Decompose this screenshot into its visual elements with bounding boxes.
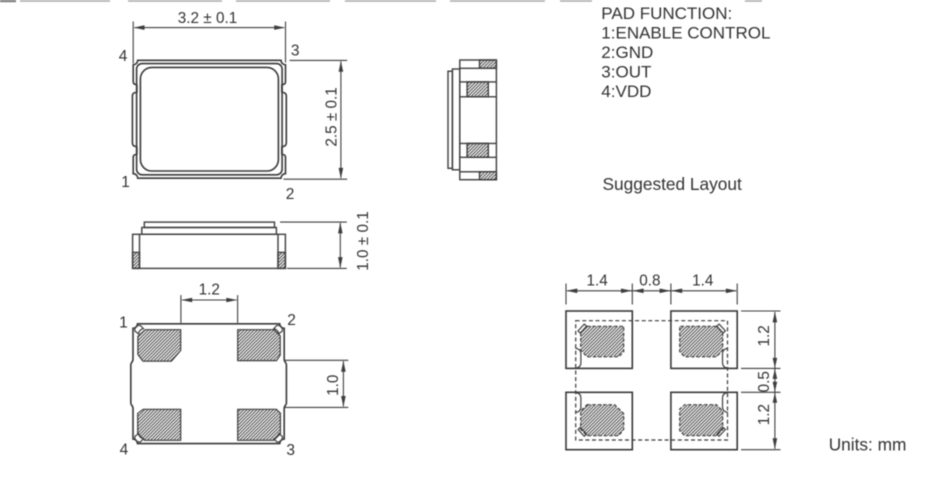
svg-text:2:GND: 2:GND (601, 43, 653, 62)
svg-text:1: 1 (119, 315, 128, 332)
svg-text:1.2: 1.2 (756, 404, 773, 425)
svg-text:1.0: 1.0 (325, 375, 342, 396)
svg-text:3:OUT: 3:OUT (601, 63, 651, 82)
svg-text:0.8: 0.8 (639, 272, 660, 289)
svg-text:0.5: 0.5 (756, 371, 773, 392)
svg-text:1: 1 (121, 174, 130, 191)
svg-text:1:ENABLE CONTROL: 1:ENABLE CONTROL (601, 23, 770, 42)
svg-text:2.5 ± 0.1: 2.5 ± 0.1 (323, 87, 340, 146)
svg-text:3: 3 (286, 442, 295, 459)
svg-text:1.2: 1.2 (756, 325, 773, 346)
svg-text:2: 2 (287, 312, 296, 329)
svg-text:1.2: 1.2 (199, 282, 220, 299)
svg-text:Suggested Layout: Suggested Layout (603, 174, 743, 194)
svg-text:1.4: 1.4 (692, 272, 714, 289)
svg-text:3: 3 (291, 43, 300, 60)
svg-text:3.2 ± 0.1: 3.2 ± 0.1 (178, 10, 237, 27)
svg-text:4:VDD: 4:VDD (601, 82, 651, 101)
svg-text:1.0 ± 0.1: 1.0 ± 0.1 (355, 211, 372, 270)
svg-text:4: 4 (119, 48, 128, 65)
svg-text:4: 4 (120, 441, 129, 458)
svg-text:PAD FUNCTION:: PAD FUNCTION: (601, 4, 732, 23)
svg-text:1.4: 1.4 (586, 272, 608, 289)
svg-text:Units: mm: Units: mm (829, 435, 907, 455)
svg-text:2: 2 (286, 186, 295, 203)
